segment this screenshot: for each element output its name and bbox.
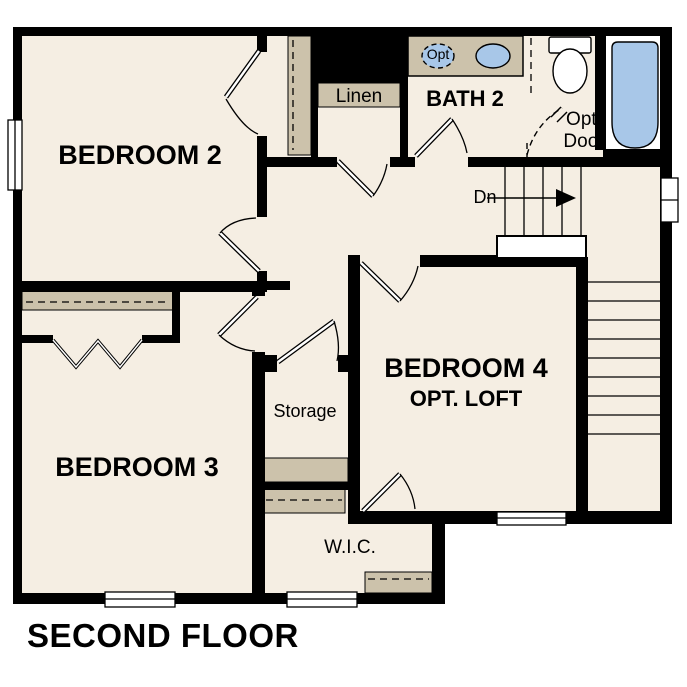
bedroom4-window — [497, 512, 566, 525]
wic-top-shelf — [263, 489, 345, 513]
stairwell-window — [661, 178, 678, 222]
bedroom3-window — [105, 592, 175, 607]
bedroom3-closet-shelf — [22, 290, 173, 310]
linen-label: Linen — [318, 87, 400, 107]
bedroom4-label: BEDROOM 4 — [366, 354, 566, 383]
wic-label: W.I.C. — [300, 538, 400, 558]
wic-window — [287, 592, 357, 607]
bedroom4-sublabel: OPT. LOFT — [366, 387, 566, 410]
optional-sink-label: Opt — [422, 47, 454, 62]
bedroom2-closet-shelf — [288, 36, 311, 155]
stair-landing — [497, 236, 586, 258]
plan-title: SECOND FLOOR — [27, 619, 299, 654]
bath2-label: BATH 2 — [405, 87, 525, 110]
bedroom2-label: BEDROOM 2 — [40, 141, 240, 170]
sink-icon — [476, 44, 510, 68]
storage-shelf — [263, 458, 348, 482]
stairs-down-label: Dn — [470, 188, 500, 207]
bedroom2-window — [8, 120, 22, 190]
wic-bottom-shelf — [365, 572, 432, 593]
bedroom3-label: BEDROOM 3 — [37, 453, 237, 482]
optional-door-label: Opt. Door — [549, 109, 619, 154]
storage-label: Storage — [255, 402, 355, 421]
floor-plan: BEDROOM 2 BEDROOM 3 BEDROOM 4 OPT. LOFT … — [0, 0, 687, 687]
